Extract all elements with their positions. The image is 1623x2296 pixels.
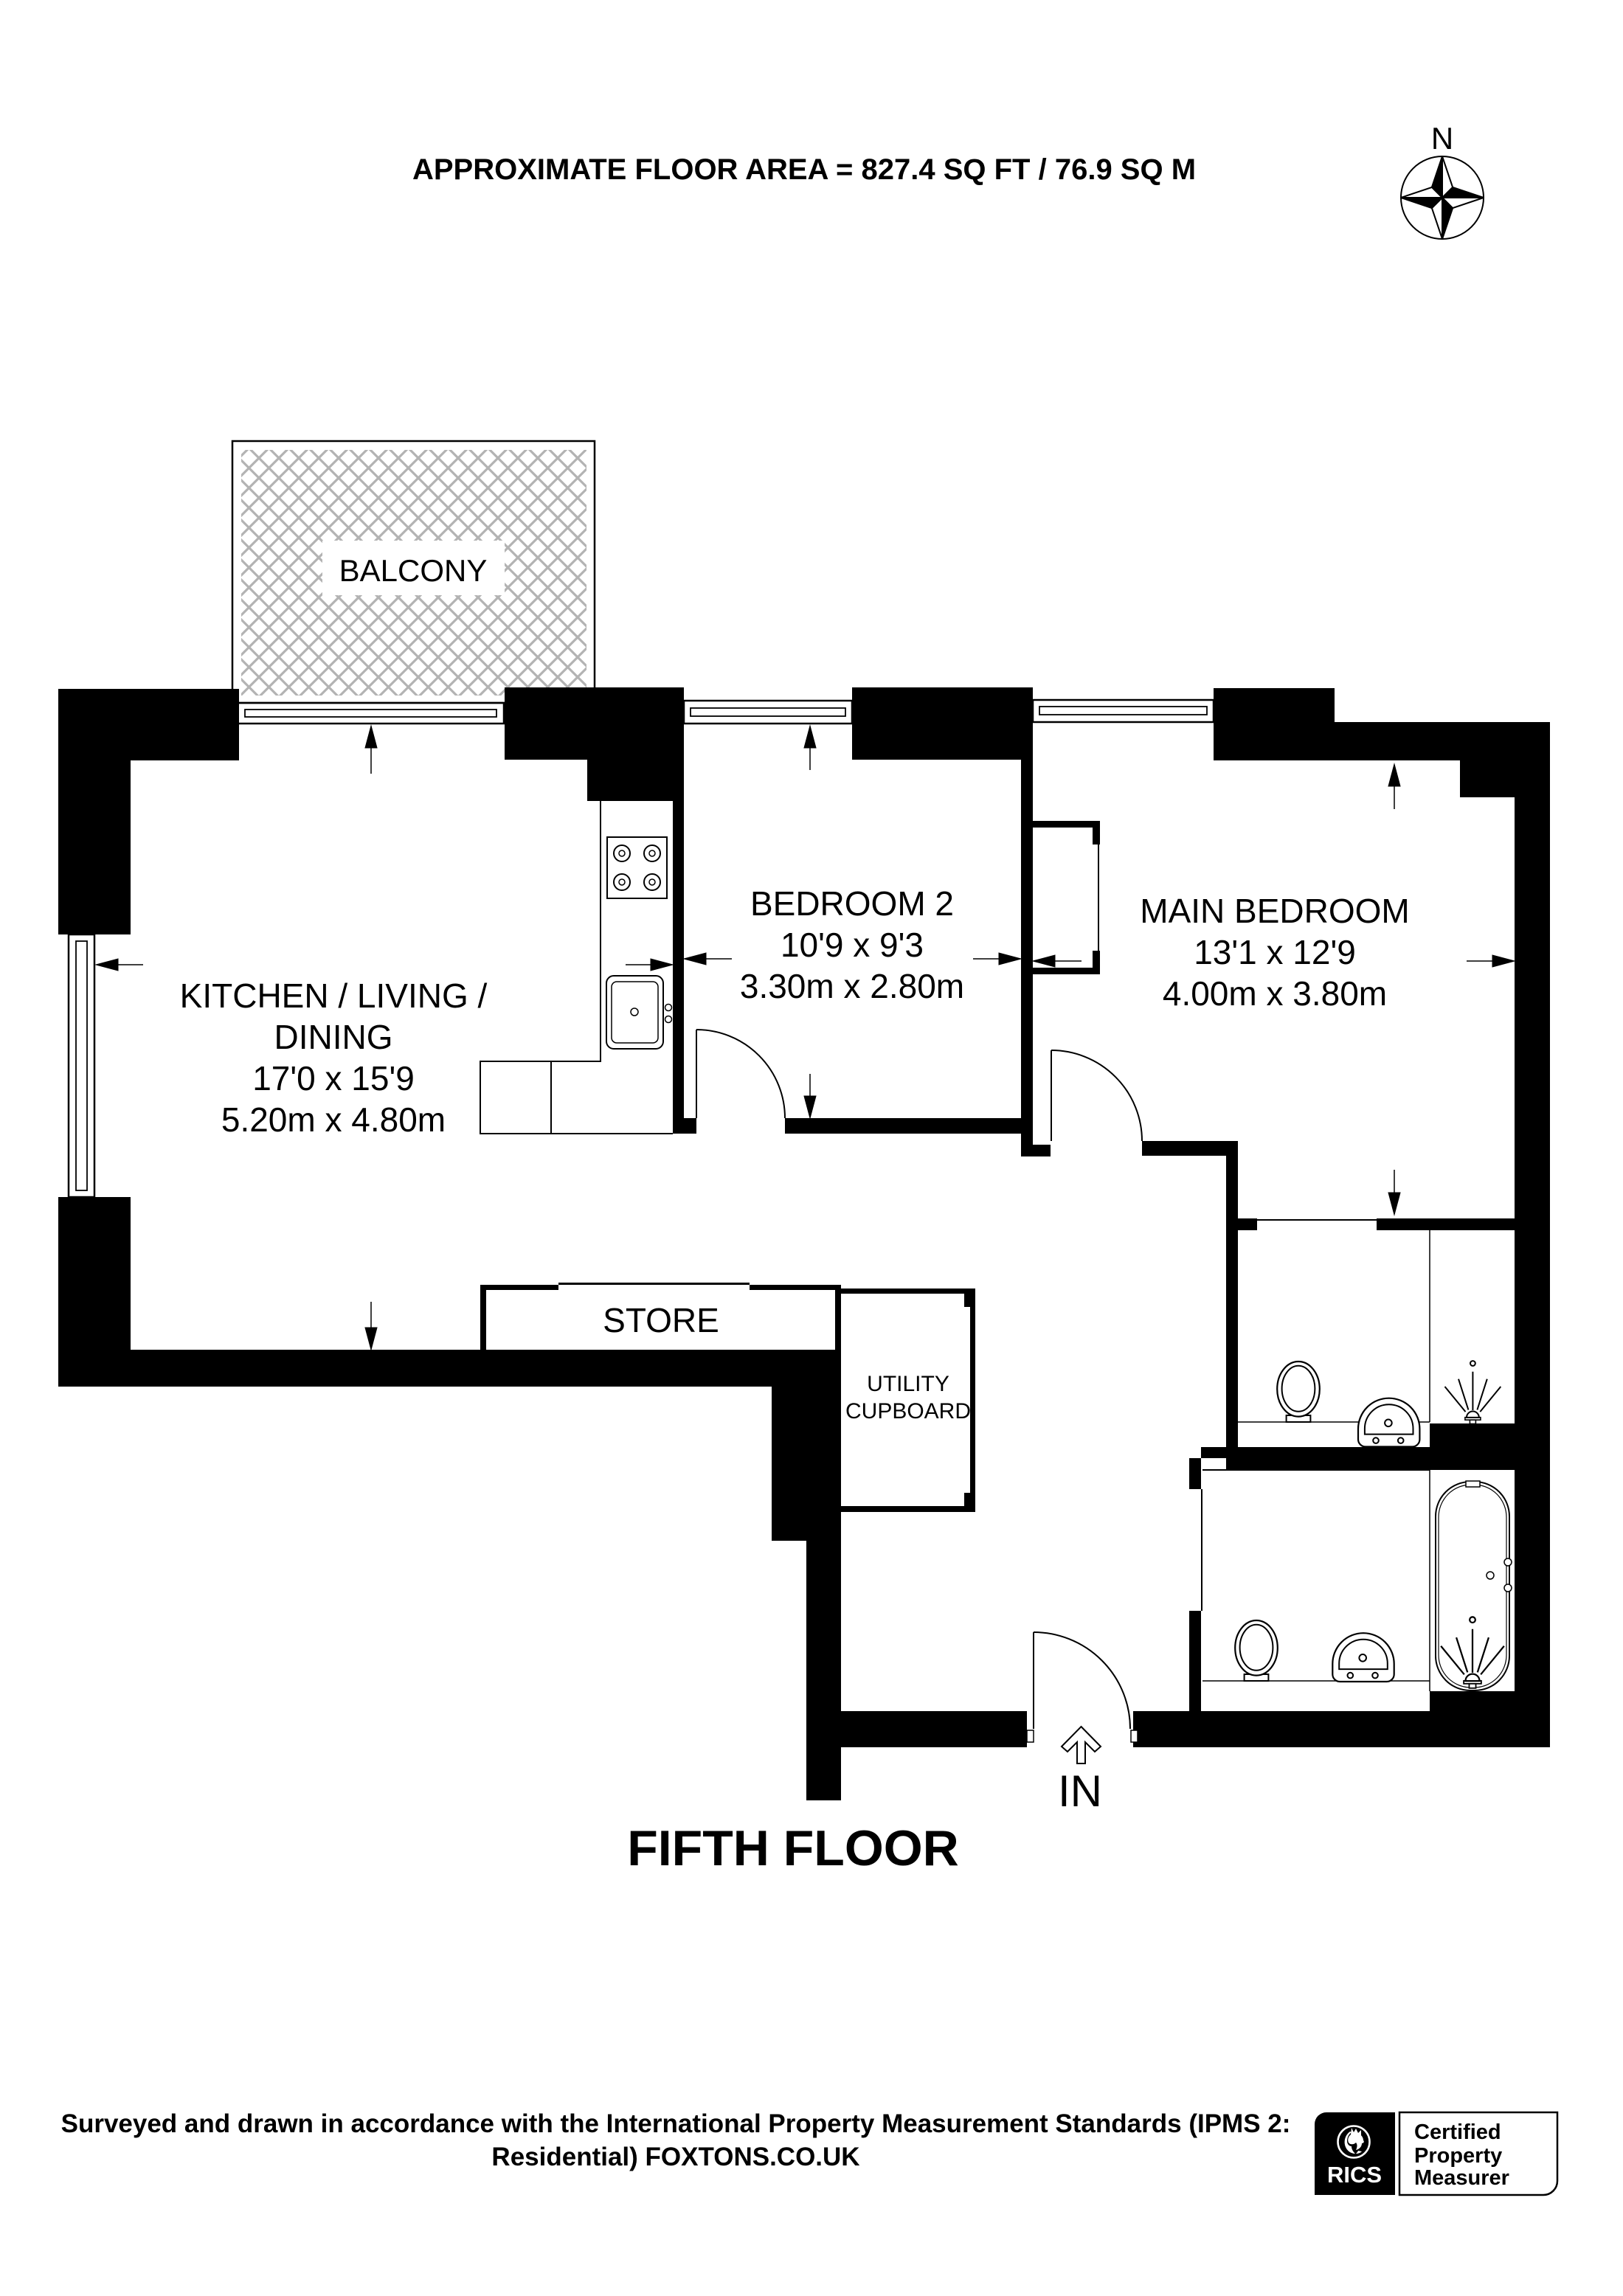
svg-text:UTILITY: UTILITY: [867, 1372, 949, 1396]
svg-text:STORE: STORE: [603, 1301, 719, 1339]
svg-text:MAIN BEDROOM: MAIN BEDROOM: [1140, 892, 1409, 930]
svg-text:4.00m x 3.80m: 4.00m x 3.80m: [1163, 974, 1387, 1013]
svg-text:17'0 x 15'9: 17'0 x 15'9: [252, 1059, 415, 1097]
svg-text:10'9 x 9'3: 10'9 x 9'3: [781, 926, 924, 964]
svg-text:RICS: RICS: [1327, 2162, 1382, 2188]
svg-text:13'1 x 12'9: 13'1 x 12'9: [1194, 933, 1356, 971]
svg-text:DINING: DINING: [274, 1018, 393, 1056]
svg-text:Certified: Certified: [1414, 2120, 1501, 2144]
svg-text:FIFTH FLOOR: FIFTH FLOOR: [627, 1820, 958, 1876]
svg-text:Surveyed and drawn in accordan: Surveyed and drawn in accordance with th…: [61, 2109, 1291, 2138]
svg-text:3.30m x 2.80m: 3.30m x 2.80m: [740, 967, 964, 1005]
svg-text:5.20m x 4.80m: 5.20m x 4.80m: [221, 1100, 446, 1139]
svg-text:BEDROOM 2: BEDROOM 2: [750, 884, 954, 923]
svg-text:Residential) FOXTONS.CO.UK: Residential) FOXTONS.CO.UK: [491, 2143, 859, 2171]
svg-text:IN: IN: [1058, 1766, 1102, 1816]
svg-text:N: N: [1431, 121, 1453, 156]
svg-text:CUPBOARD: CUPBOARD: [845, 1399, 971, 1423]
svg-text:APPROXIMATE FLOOR AREA = 827.4: APPROXIMATE FLOOR AREA = 827.4 SQ FT / 7…: [412, 153, 1196, 186]
svg-text:KITCHEN / LIVING /: KITCHEN / LIVING /: [180, 977, 488, 1015]
svg-text:BALCONY: BALCONY: [339, 553, 488, 588]
svg-text:Measurer: Measurer: [1414, 2166, 1509, 2190]
svg-text:Property: Property: [1414, 2144, 1502, 2168]
